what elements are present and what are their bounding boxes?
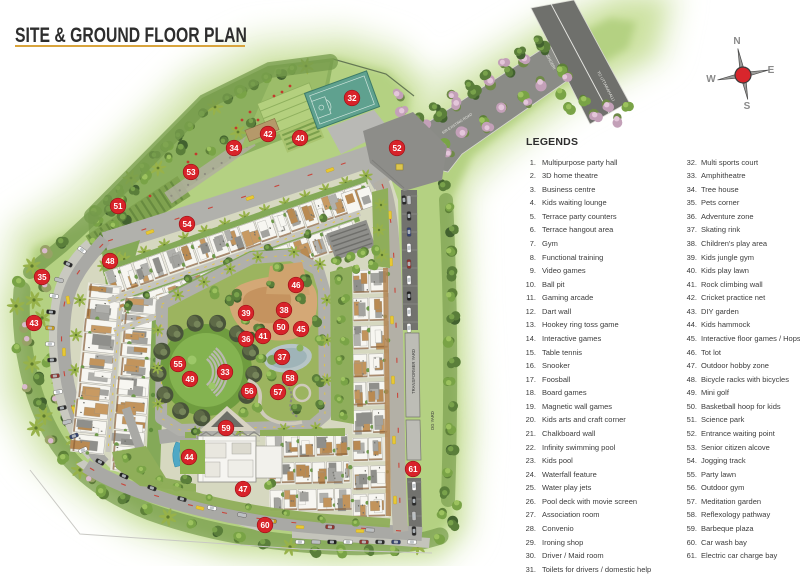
svg-text:34: 34 xyxy=(229,144,239,153)
svg-text:40: 40 xyxy=(295,134,305,143)
svg-text:42: 42 xyxy=(263,130,273,139)
svg-text:E: E xyxy=(768,65,775,76)
svg-text:N: N xyxy=(733,36,740,47)
svg-text:S: S xyxy=(744,101,751,112)
svg-text:52: 52 xyxy=(392,144,402,153)
svg-text:32: 32 xyxy=(347,94,357,103)
svg-text:W: W xyxy=(706,74,716,85)
